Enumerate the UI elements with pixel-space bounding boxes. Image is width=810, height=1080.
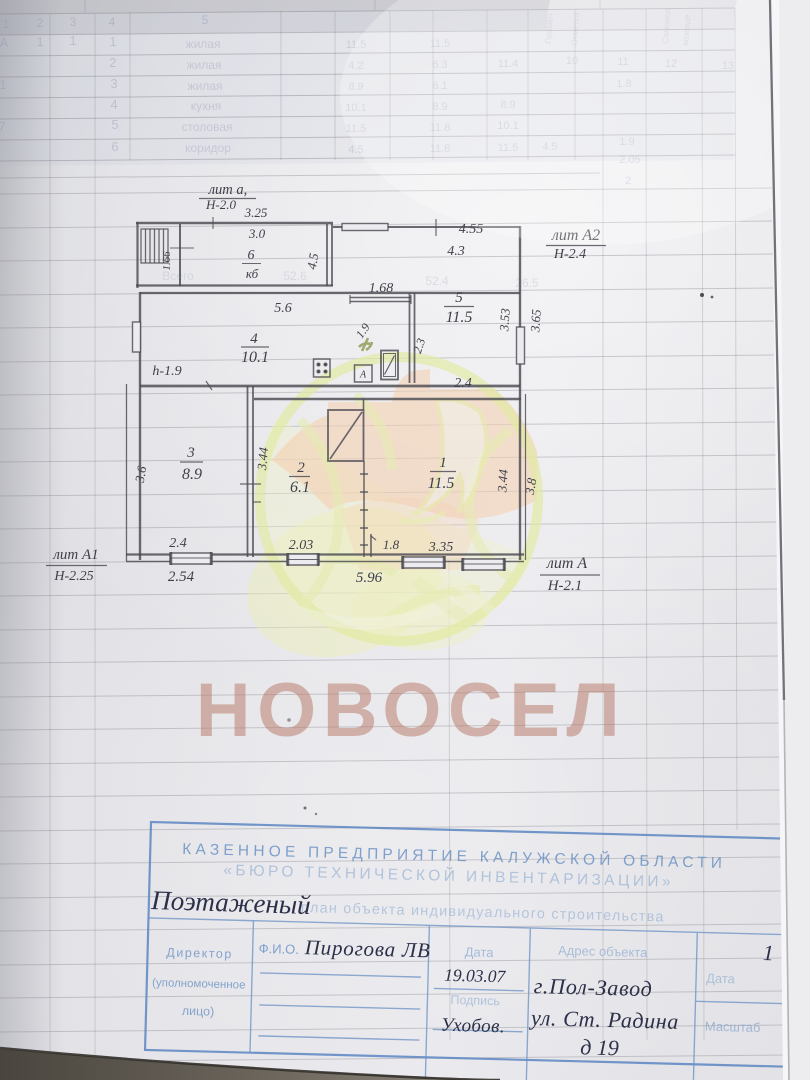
- svg-text:кухня: кухня: [191, 99, 222, 113]
- svg-text:4: 4: [109, 15, 116, 29]
- svg-text:1: 1: [3, 17, 10, 31]
- svg-text:1: 1: [439, 455, 447, 471]
- svg-text:3.53: 3.53: [496, 307, 513, 332]
- svg-text:3: 3: [70, 15, 77, 29]
- svg-text:11.5: 11.5: [446, 309, 473, 326]
- svg-text:19.03.07: 19.03.07: [444, 965, 507, 987]
- svg-text:1: 1: [109, 34, 116, 49]
- svg-text:5.96: 5.96: [356, 570, 383, 586]
- svg-text:3.44: 3.44: [254, 446, 271, 471]
- svg-text:3.35: 3.35: [428, 540, 454, 555]
- svg-text:д 19: д 19: [580, 1034, 619, 1060]
- svg-text:Ухобов.: Ухобов.: [441, 1015, 506, 1038]
- svg-text:Адрес объекта: Адрес объекта: [558, 943, 648, 960]
- svg-text:жилая: жилая: [188, 79, 223, 93]
- svg-text:Дата: Дата: [465, 944, 495, 960]
- svg-text:3: 3: [110, 76, 117, 91]
- svg-text:1: 1: [0, 77, 7, 92]
- svg-text:h-1.9: h-1.9: [152, 364, 181, 379]
- svg-text:г.Пол-Завод: г.Пол-Завод: [534, 973, 653, 1001]
- svg-text:Дата: Дата: [706, 971, 736, 987]
- svg-text:3.6: 3.6: [132, 464, 150, 484]
- svg-text:лит А: лит А: [546, 555, 588, 572]
- svg-text:коридор: коридор: [185, 141, 231, 155]
- svg-text:3.65: 3.65: [527, 308, 544, 333]
- svg-text:11.5: 11.5: [428, 475, 455, 492]
- svg-text:6.1: 6.1: [290, 479, 310, 496]
- svg-text:3.0: 3.0: [248, 226, 266, 241]
- svg-text:6: 6: [248, 248, 255, 263]
- svg-text:4.3: 4.3: [447, 244, 465, 259]
- svg-text:1: 1: [762, 940, 774, 965]
- svg-text:1.8: 1.8: [383, 537, 400, 552]
- svg-text:лит А1: лит А1: [52, 547, 98, 563]
- svg-text:Поэтаженый: Поэтаженый: [150, 885, 312, 920]
- svg-text:ул. Ст. Радина: ул. Ст. Радина: [529, 1005, 680, 1034]
- svg-text:10.1: 10.1: [241, 349, 269, 366]
- svg-text:Н-2.1: Н-2.1: [547, 578, 583, 594]
- svg-text:Директор: Директор: [166, 945, 233, 961]
- svg-text:2.54: 2.54: [168, 569, 195, 585]
- svg-text:столовая: столовая: [182, 120, 233, 134]
- svg-text:4.5: 4.5: [304, 251, 322, 270]
- svg-text:5: 5: [202, 13, 209, 27]
- svg-text:4: 4: [110, 97, 117, 112]
- svg-text:1: 1: [36, 34, 43, 49]
- svg-text:лит а,: лит а,: [208, 182, 248, 198]
- svg-text:Ф.И.О.: Ф.И.О.: [259, 941, 300, 957]
- svg-text:5.6: 5.6: [274, 301, 292, 316]
- svg-text:А: А: [359, 370, 367, 381]
- svg-text:1.9: 1.9: [353, 321, 373, 341]
- svg-text:план объекта индивидуального с: план объекта индивидуального строительст…: [301, 900, 665, 926]
- svg-text:2: 2: [109, 55, 116, 70]
- svg-text:Н-2.4: Н-2.4: [553, 247, 586, 262]
- svg-text:5: 5: [455, 290, 463, 306]
- svg-text:7: 7: [0, 119, 6, 134]
- svg-text:3: 3: [186, 445, 195, 461]
- svg-text:2.03: 2.03: [289, 538, 314, 553]
- svg-text:3.25: 3.25: [244, 205, 268, 220]
- svg-text:лицо): лицо): [182, 1004, 215, 1019]
- svg-text:Н-2.25: Н-2.25: [53, 569, 93, 584]
- svg-text:Масштаб: Масштаб: [705, 1019, 761, 1035]
- svg-text:Н-2.0: Н-2.0: [205, 197, 236, 212]
- svg-text:6: 6: [111, 139, 118, 154]
- svg-text:3.8: 3.8: [522, 476, 540, 496]
- svg-text:4: 4: [250, 331, 258, 347]
- svg-text:1.68: 1.68: [369, 281, 394, 296]
- svg-text:52.6: 52.6: [283, 269, 307, 283]
- svg-text:Подпись: Подпись: [450, 993, 500, 1008]
- svg-text:жилая: жилая: [186, 37, 221, 51]
- svg-text:Пирогова ЛВ: Пирогова ЛВ: [303, 935, 431, 962]
- svg-text:1: 1: [69, 33, 76, 48]
- svg-text:жилая: жилая: [187, 58, 222, 72]
- svg-text:(уполномоченное: (уполномоченное: [152, 977, 246, 991]
- svg-text:2.3: 2.3: [410, 336, 428, 355]
- svg-text:А: А: [0, 35, 9, 50]
- svg-text:1.66: 1.66: [161, 251, 173, 271]
- svg-text:2.4: 2.4: [169, 536, 187, 551]
- svg-text:52.4: 52.4: [425, 274, 449, 288]
- svg-text:НОВОСЕЛ: НОВОСЕЛ: [196, 668, 627, 753]
- svg-text:3.44: 3.44: [494, 468, 511, 493]
- svg-text:2.4: 2.4: [454, 376, 472, 391]
- svg-text:5: 5: [111, 117, 118, 132]
- svg-text:2: 2: [297, 460, 305, 476]
- svg-text:8.9: 8.9: [182, 466, 202, 483]
- svg-text:кб: кб: [246, 266, 259, 281]
- svg-text:2: 2: [37, 16, 44, 30]
